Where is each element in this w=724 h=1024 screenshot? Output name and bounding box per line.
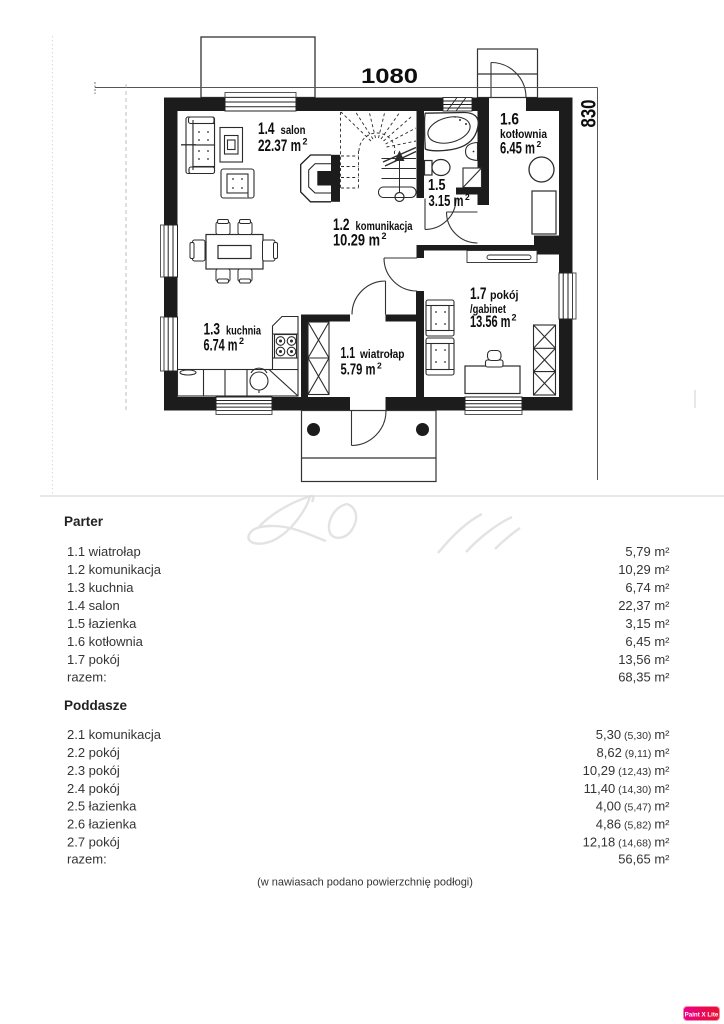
svg-text:2: 2 [537, 139, 542, 149]
svg-text:6,74 m²: 6,74 m² [625, 580, 670, 595]
svg-text:2: 2 [377, 361, 382, 371]
svg-text:1.6 kotłownia: 1.6 kotłownia [67, 634, 144, 649]
svg-text:8,62 (9,11) m²: 8,62 (9,11) m² [597, 745, 671, 760]
svg-text:1.7 pokój: 1.7 pokój [67, 652, 120, 667]
svg-text:1.3 kuchnia: 1.3 kuchnia [67, 580, 134, 595]
svg-text:2.2 pokój: 2.2 pokój [67, 745, 120, 760]
svg-text:6.45 m: 6.45 m [500, 140, 535, 158]
svg-text:11,40 (14,30) m²: 11,40 (14,30) m² [584, 781, 671, 796]
svg-text:Parter: Parter [64, 514, 104, 529]
svg-text:10.29 m: 10.29 m [333, 231, 380, 250]
svg-text:2: 2 [239, 336, 244, 346]
svg-text:pokój: pokój [490, 288, 519, 302]
svg-text:2: 2 [303, 137, 308, 147]
svg-text:2: 2 [465, 192, 470, 202]
svg-text:5.79 m: 5.79 m [341, 362, 376, 379]
svg-text:Poddasze: Poddasze [64, 698, 128, 713]
svg-text:6.74 m: 6.74 m [204, 336, 238, 355]
svg-text:2.1 komunikacja: 2.1 komunikacja [67, 727, 162, 742]
svg-text:1.1 wiatrołap: 1.1 wiatrołap [67, 544, 141, 559]
svg-text:2: 2 [382, 231, 387, 241]
svg-text:(w nawiasach podano powierzchn: (w nawiasach podano powierzchnię podłogi… [257, 877, 473, 889]
svg-text:wiatrołap: wiatrołap [359, 347, 404, 361]
svg-text:2.3 pokój: 2.3 pokój [67, 763, 120, 778]
svg-text:1.7: 1.7 [470, 284, 487, 303]
svg-text:13,56 m²: 13,56 m² [618, 652, 670, 667]
svg-text:razem:: razem: [67, 851, 107, 866]
svg-text:4,00 (5,47) m²: 4,00 (5,47) m² [596, 799, 670, 814]
svg-text:4,86 (5,82) m²: 4,86 (5,82) m² [596, 817, 670, 832]
svg-text:razem:: razem: [67, 670, 107, 685]
svg-text:1080: 1080 [361, 65, 418, 88]
svg-text:10,29 (12,43) m²: 10,29 (12,43) m² [583, 763, 670, 778]
svg-text:5,30 (5,30) m²: 5,30 (5,30) m² [596, 727, 670, 742]
svg-text:1.6: 1.6 [500, 111, 519, 129]
svg-text:2.7 pokój: 2.7 pokój [67, 834, 120, 849]
svg-text:56,65 m²: 56,65 m² [618, 851, 670, 866]
svg-text:5,79 m²: 5,79 m² [625, 544, 670, 559]
svg-text:22.37 m: 22.37 m [258, 136, 301, 155]
svg-text:10,29 m²: 10,29 m² [618, 562, 670, 577]
svg-text:6,45 m²: 6,45 m² [625, 634, 670, 649]
svg-text:1.1: 1.1 [341, 345, 356, 362]
svg-text:12,18 (14,68) m²: 12,18 (14,68) m² [583, 834, 670, 849]
svg-text:1.2 komunikacja: 1.2 komunikacja [67, 562, 162, 577]
svg-text:2.6 łazienka: 2.6 łazienka [67, 817, 137, 832]
svg-text:2.5 łazienka: 2.5 łazienka [67, 799, 137, 814]
svg-text:2: 2 [512, 313, 517, 323]
svg-text:1.5: 1.5 [428, 177, 446, 194]
svg-text:830: 830 [578, 100, 601, 128]
svg-text:22,37 m²: 22,37 m² [618, 598, 670, 613]
svg-text:1.5 łazienka: 1.5 łazienka [67, 616, 137, 631]
svg-text:3.15 m: 3.15 m [429, 193, 464, 210]
svg-text:3,15 m²: 3,15 m² [625, 616, 670, 631]
svg-text:Paint X Lite: Paint X Lite [685, 1012, 719, 1019]
svg-text:salon: salon [281, 123, 306, 137]
svg-text:13.56 m: 13.56 m [470, 312, 511, 331]
svg-text:1.4 salon: 1.4 salon [67, 598, 120, 613]
svg-text:2.4 pokój: 2.4 pokój [67, 781, 120, 796]
svg-text:68,35 m²: 68,35 m² [618, 670, 670, 685]
